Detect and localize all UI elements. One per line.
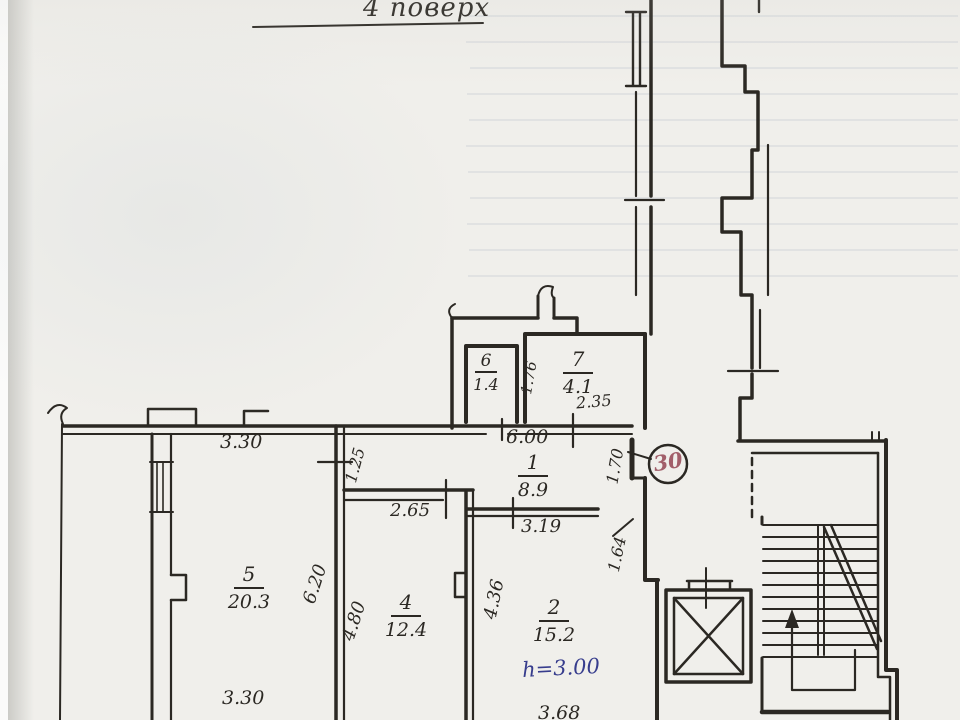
room-7-label: 7 4.1 (550, 347, 606, 398)
dim-room5-width-bottom: 3.30 (222, 689, 264, 709)
room-2-number: 2 (539, 595, 570, 622)
dim-room5-width-top: 3.30 (220, 433, 262, 453)
staircase (763, 525, 881, 690)
room-1-number: 1 (518, 450, 549, 477)
room-6-number: 6 (475, 351, 498, 373)
room-5-area: 20.3 (218, 591, 280, 613)
dim-room4-width: 2.65 (390, 502, 430, 521)
dim-room2-width: 3.68 (538, 702, 580, 720)
room-1-area: 8.9 (505, 479, 561, 501)
scanned-floor-plan-page: 4 поверх 30 1 8.9 2 15.2 4 12.4 5 20.3 6… (0, 0, 960, 720)
room-6-label: 6 1.4 (462, 351, 510, 394)
room-4-label: 4 12.4 (376, 590, 436, 641)
dim-hall-width: 6.00 (506, 428, 548, 448)
room-6-area: 1.4 (462, 375, 510, 394)
room-1-label: 1 8.9 (505, 450, 561, 501)
room-2-label: 2 15.2 (524, 595, 584, 646)
room-4-area: 12.4 (376, 619, 436, 641)
floor-title: 4 поверх (344, 0, 509, 23)
room-5-number: 5 (234, 562, 265, 589)
room-4-number: 4 (391, 590, 422, 617)
room-7-number: 7 (563, 347, 594, 374)
elevator-shaft (666, 568, 751, 682)
room-5-label: 5 20.3 (218, 562, 280, 613)
bleed-through-lines (466, 16, 958, 276)
room-2-height-note: h=3.00 (520, 654, 601, 682)
dim-hall-bottom: 3.19 (521, 518, 561, 537)
dim-room7-bottom: 2.35 (575, 392, 612, 412)
room-2-area: 15.2 (524, 624, 584, 646)
title-underline (253, 23, 483, 27)
